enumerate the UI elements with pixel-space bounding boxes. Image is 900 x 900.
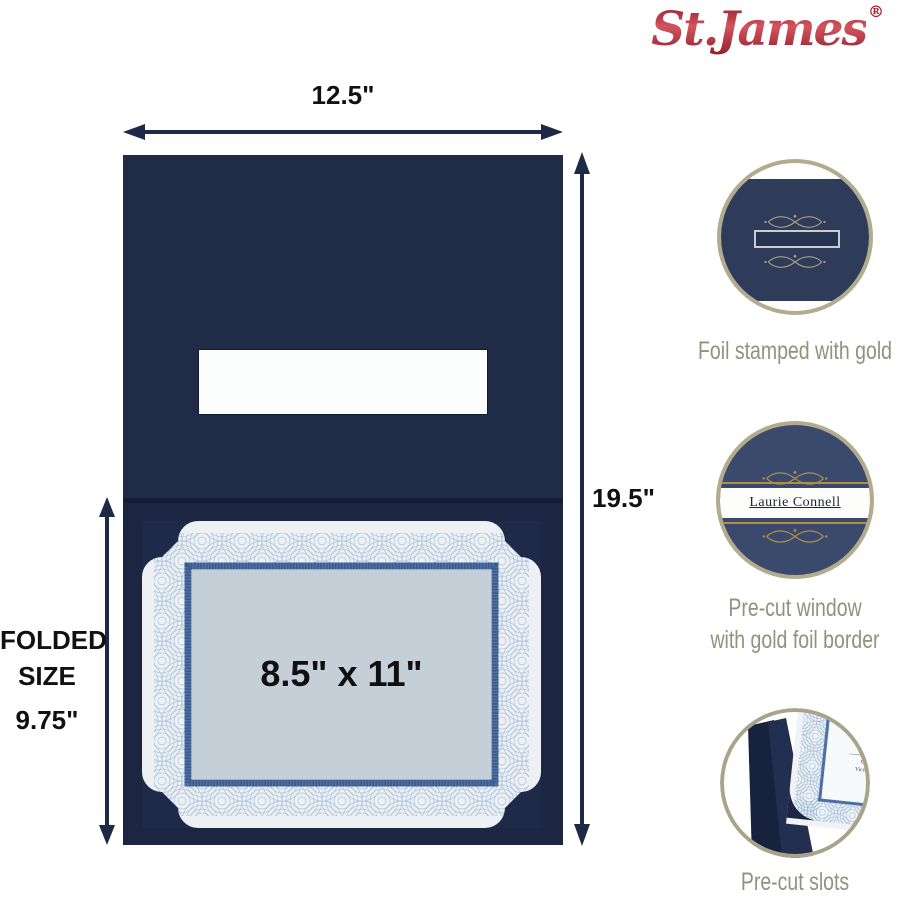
corner-slot-top-right bbox=[477, 521, 541, 585]
flourish-icon bbox=[760, 527, 830, 546]
product-infographic: St.James® 12.5" bbox=[0, 0, 900, 900]
corner-slot-bottom-left bbox=[142, 764, 206, 828]
callout-slots-caption: Pre-cut slots bbox=[694, 868, 897, 897]
folded-size-word1: FOLDED bbox=[0, 622, 94, 658]
recipient-name: Laurie Connell bbox=[749, 495, 840, 511]
width-dimension-label: 12.5" bbox=[123, 80, 563, 111]
brand-logo-text: St.James bbox=[651, 2, 866, 57]
window-slit bbox=[754, 230, 840, 248]
callout-window-caption-line1: Pre-cut window bbox=[694, 594, 897, 623]
flourish-icon bbox=[763, 213, 827, 231]
die-cut-window bbox=[198, 349, 488, 415]
folder-front-cover bbox=[123, 155, 563, 500]
width-dimension-arrow-icon bbox=[121, 121, 565, 143]
slots-detail-illustration: W Charles Abb Vice President, Sa bbox=[720, 708, 870, 858]
folded-size-label: FOLDED SIZE 9.75" bbox=[0, 622, 94, 738]
registered-trademark-icon: ® bbox=[868, 2, 884, 21]
callout-foil-circle bbox=[717, 159, 873, 315]
insert-size-label: 8.5" x 11" bbox=[192, 653, 491, 695]
callout-foil-caption: Foil stamped with gold bbox=[694, 337, 897, 366]
flourish-icon bbox=[760, 469, 830, 488]
corner-slot-bottom-right bbox=[477, 764, 541, 828]
callout-window-circle: Laurie Connell bbox=[716, 421, 874, 579]
folded-size-arrow-icon bbox=[94, 495, 120, 847]
callout-slots-circle: W Charles Abb Vice President, Sa bbox=[720, 708, 870, 858]
callout-window-caption-line2: with gold foil border bbox=[694, 626, 897, 655]
corner-slot-top-left bbox=[142, 521, 206, 585]
gold-foil-border-line bbox=[716, 482, 874, 484]
folded-size-value: 9.75" bbox=[0, 702, 94, 738]
height-dimension-label: 19.5" bbox=[592, 483, 655, 514]
flourish-icon bbox=[763, 253, 827, 271]
folded-size-word2: SIZE bbox=[0, 658, 94, 694]
gold-foil-border-line bbox=[716, 522, 874, 524]
brand-logo: St.James® bbox=[651, 2, 884, 57]
name-window: Laurie Connell bbox=[716, 488, 874, 518]
